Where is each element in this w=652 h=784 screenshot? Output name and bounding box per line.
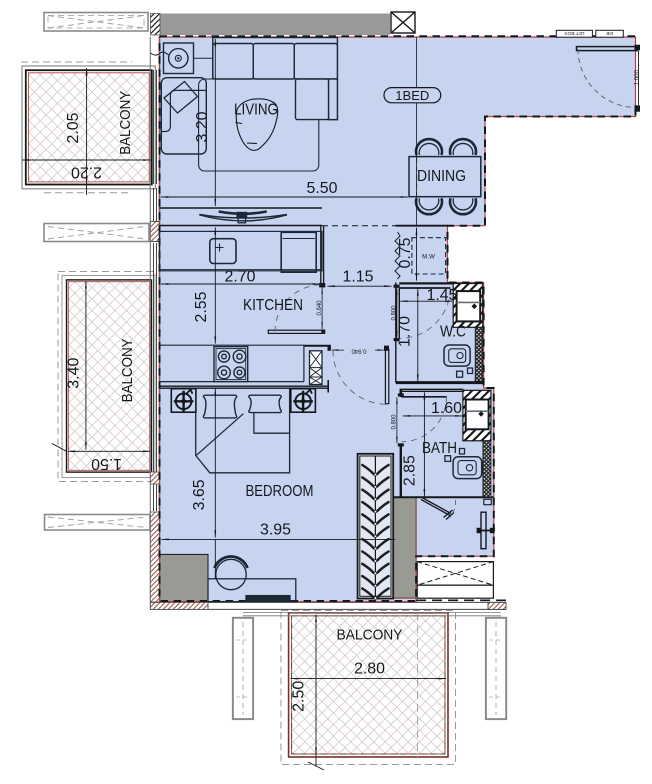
svg-text:1.000: 1.000 [635,70,641,86]
svg-text:3.65: 3.65 [191,479,208,510]
svg-text:1.60: 1.60 [431,400,462,417]
svg-text:0.940: 0.940 [351,348,367,354]
svg-text:1.50: 1.50 [91,455,122,472]
svg-text:M.W: M.W [422,253,435,260]
svg-text:2.05: 2.05 [65,113,82,144]
svg-text:2.85: 2.85 [402,455,419,486]
svg-text:BATH: BATH [422,440,457,457]
svg-text:3.40: 3.40 [66,357,83,388]
svg-text:KITCHEN: KITCHEN [243,297,303,314]
svg-text:5.50: 5.50 [307,180,338,197]
svg-text:DB: DB [606,30,613,36]
svg-text:W.C: W.C [440,324,466,341]
svg-text:2.70: 2.70 [225,269,256,286]
svg-text:0.840: 0.840 [317,300,323,316]
svg-text:0.800: 0.800 [391,414,397,430]
svg-text:BEDROOM: BEDROOM [246,483,314,500]
svg-text:0.75: 0.75 [397,238,414,269]
svg-text:BALCONY: BALCONY [337,627,403,644]
svg-text:1BED: 1BED [395,88,429,103]
svg-text:2.20: 2.20 [71,163,102,180]
svg-text:3.95: 3.95 [260,522,291,539]
svg-text:1.15: 1.15 [343,269,374,286]
svg-text:DINING: DINING [417,168,466,185]
svg-text:1.45: 1.45 [427,287,458,304]
svg-text:2.80: 2.80 [354,661,385,678]
svg-text:BALCONY: BALCONY [119,338,136,402]
svg-text:2.55: 2.55 [193,292,210,323]
svg-text:1.70: 1.70 [397,316,414,347]
svg-text:3.20: 3.20 [194,111,211,142]
svg-text:BALCONY: BALCONY [117,91,134,155]
svg-text:2.50: 2.50 [291,680,308,711]
svg-text:LET BOX: LET BOX [564,30,585,36]
svg-text:0.800: 0.800 [391,305,397,321]
